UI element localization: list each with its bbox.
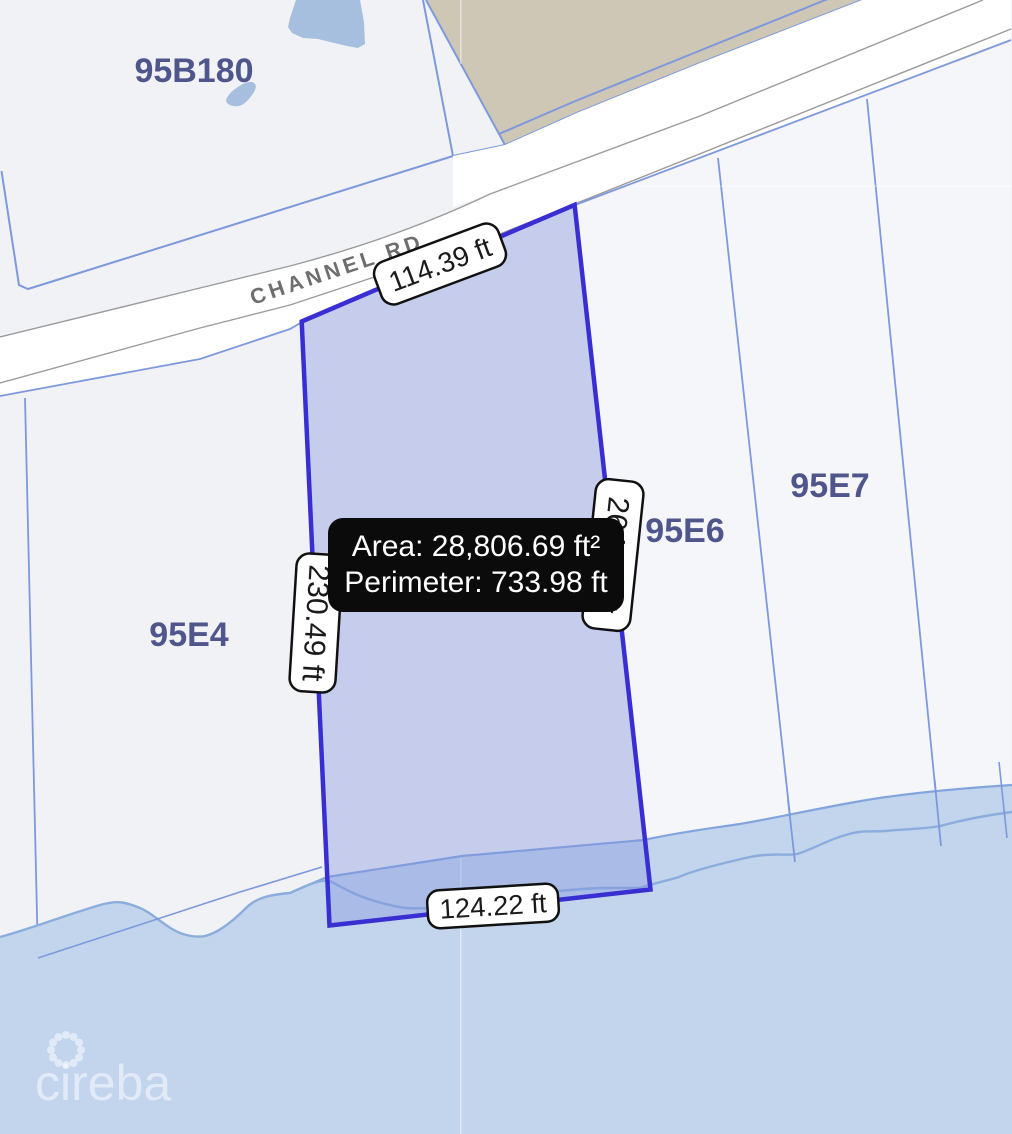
svg-text:124.22 ft: 124.22 ft [439,887,548,924]
svg-text:95E6: 95E6 [645,512,724,550]
svg-text:95E7: 95E7 [790,467,869,505]
svg-text:95E4: 95E4 [149,616,228,654]
svg-text:Area: 28,806.69 ft²: Area: 28,806.69 ft² [352,530,601,563]
svg-text:cireba: cireba [35,1055,171,1111]
svg-text:Perimeter: 733.98 ft: Perimeter: 733.98 ft [344,566,608,599]
svg-text:95B180: 95B180 [134,52,253,90]
